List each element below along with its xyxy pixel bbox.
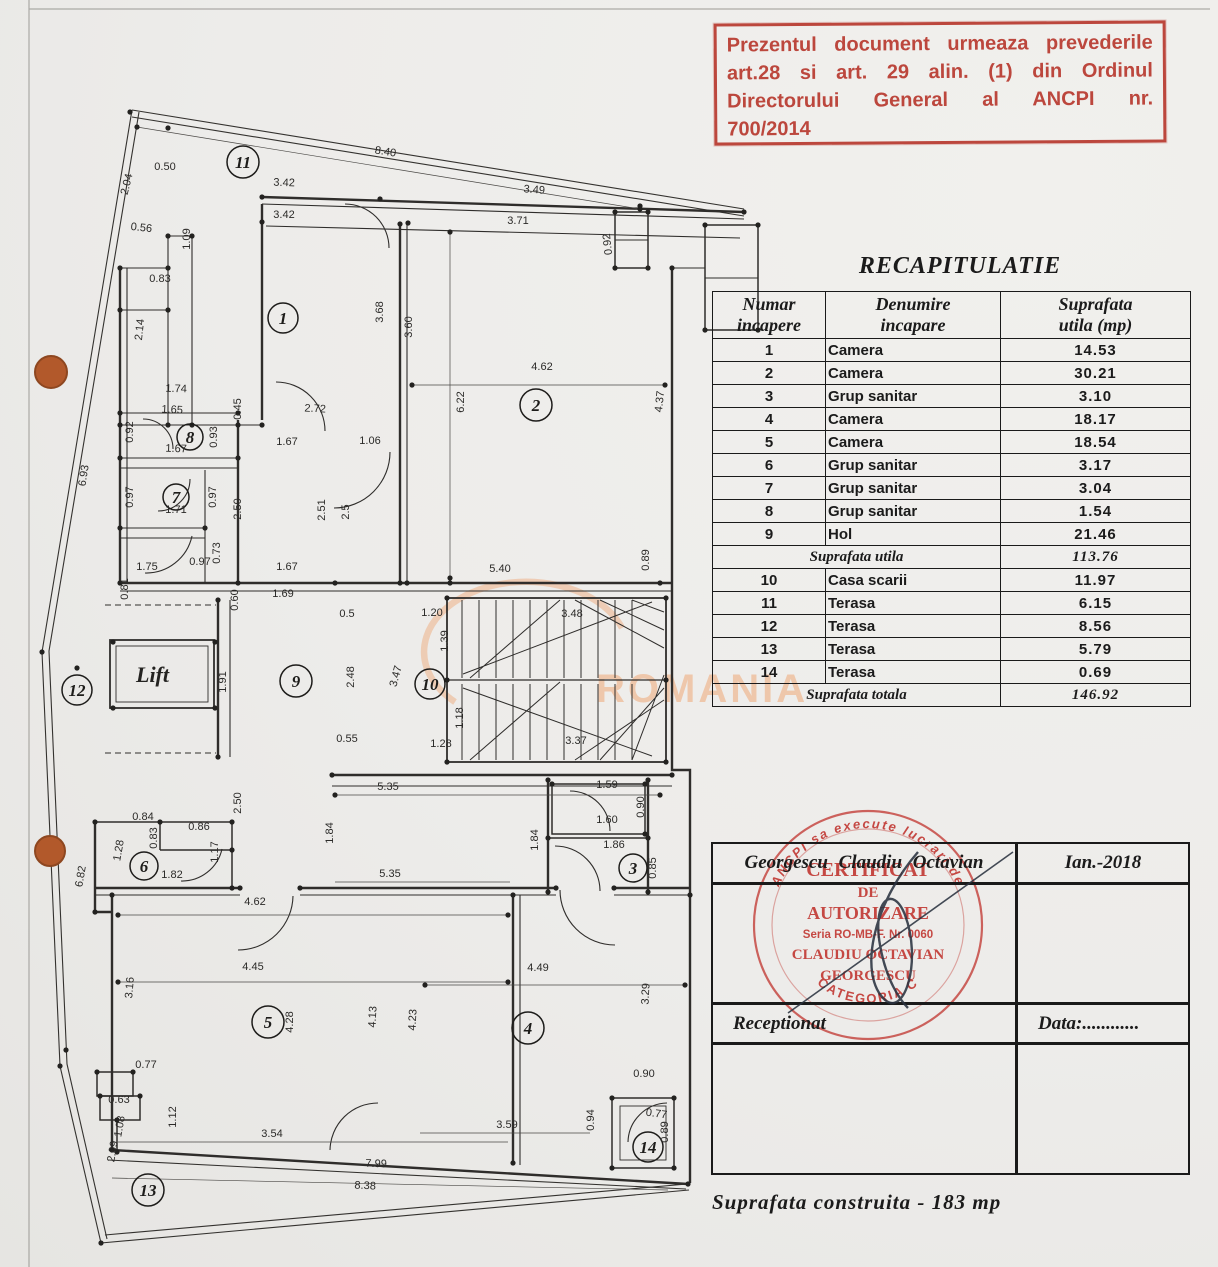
room-number: 8 <box>186 428 195 447</box>
dimension-label: 5.35 <box>379 868 400 880</box>
dimension-label: 0.97 <box>207 486 219 507</box>
dimension-label: 1.59 <box>596 779 617 791</box>
dimension-label: 1.75 <box>136 561 157 573</box>
dimension-label: 4.28 <box>284 1011 296 1032</box>
dimension-label: 0.92 <box>601 233 615 256</box>
room-number: 11 <box>235 153 251 172</box>
dimension-label: 8.40 <box>374 144 397 159</box>
room-number: 3 <box>628 859 638 878</box>
dimension-label: 0.90 <box>635 796 647 817</box>
recap-row: 12Terasa8.56 <box>713 615 1191 638</box>
dimension-label: 1.20 <box>421 607 442 619</box>
dimension-label: 2.5 <box>340 504 352 519</box>
dimension-label: 3.37 <box>565 735 586 747</box>
room-number: 4 <box>523 1019 533 1038</box>
dimension-label: 0.89 <box>640 549 652 570</box>
dimension-label: 0.92 <box>124 421 136 442</box>
stamp-line: 700/2014 <box>727 113 1153 144</box>
room-number: 9 <box>292 672 301 691</box>
dimension-label: 1.69 <box>272 588 293 600</box>
dimension-label: 0.83 <box>148 827 160 848</box>
dimension-label: 0.60 <box>229 589 241 610</box>
dimension-label: 6.22 <box>455 391 467 412</box>
dimension-label: 7.99 <box>365 1158 387 1171</box>
dimension-label: 0.84 <box>132 811 153 823</box>
room-number: 13 <box>140 1181 158 1200</box>
dimension-label: 2.50 <box>232 792 244 813</box>
dimension-label: 2.51 <box>316 499 328 520</box>
dimension-label: 4.37 <box>653 390 667 413</box>
recap-row: 14Terasa0.69 <box>713 661 1191 684</box>
col-header-suprafata: Suprafatautila (mp) <box>1001 292 1191 339</box>
dimension-label: 0.97 <box>124 486 136 507</box>
dimension-label: 3.71 <box>507 215 528 227</box>
dimension-label: 3.16 <box>123 977 137 999</box>
col-header-numar: Numarincapere <box>713 292 826 339</box>
dimension-label: 2.72 <box>304 402 326 415</box>
recap-row: 1Camera14.53 <box>713 339 1191 362</box>
recap-row: 13Terasa5.79 <box>713 638 1191 661</box>
dimension-label: 0.50 <box>154 161 175 173</box>
dimension-label: 1.67 <box>276 436 297 448</box>
dimension-label: 0.77 <box>135 1059 156 1071</box>
dimension-label: 2.09 <box>105 1140 121 1163</box>
wax-dot <box>35 836 65 866</box>
dimension-label: 3.59 <box>496 1119 517 1131</box>
dimension-label: 1.71 <box>165 504 186 516</box>
dimension-label: 5.40 <box>489 563 510 575</box>
dimension-label: 0.45 <box>232 398 244 419</box>
recap-row: 6Grup sanitar3.17 <box>713 454 1191 477</box>
dimension-label: 1.28 <box>111 839 127 862</box>
dimension-label: 4.23 <box>406 1009 419 1031</box>
dimension-label: 0.83 <box>149 273 170 285</box>
dimension-label: 5.35 <box>377 781 398 793</box>
recap-row: 5Camera18.54 <box>713 431 1191 454</box>
handwritten-signature <box>712 798 1190 1198</box>
room-number: 14 <box>640 1138 657 1157</box>
dimension-label: 1.91 <box>217 671 229 692</box>
dimension-label: 0.97 <box>189 556 210 568</box>
dimension-label: 8.38 <box>354 1179 376 1192</box>
room-number: 2 <box>531 396 541 415</box>
dimension-label: 1.65 <box>161 403 183 416</box>
dimension-label: 4.13 <box>366 1006 379 1028</box>
room-number: 10 <box>422 675 440 694</box>
dimension-label: 1.12 <box>167 1106 179 1127</box>
dimension-label: 0.5 <box>339 608 354 620</box>
dimension-label: 3.48 <box>561 608 582 620</box>
dimension-label: 3.54 <box>261 1128 282 1140</box>
dimension-label: 1.84 <box>529 829 541 850</box>
dimension-label: 3.60 <box>403 316 415 337</box>
recap-row: 7Grup sanitar3.04 <box>713 477 1191 500</box>
dimension-label: 3.47 <box>388 664 405 688</box>
dimension-label: 2.50 <box>232 498 244 519</box>
dimension-label: 1.86 <box>603 839 624 851</box>
dimension-label: 0.89 <box>659 1121 671 1142</box>
dimension-label: 1.84 <box>324 822 336 843</box>
room-number: 1 <box>279 309 288 328</box>
dimension-label: 1.18 <box>454 707 466 728</box>
recap-subtotal-row: Suprafata utila113.76 <box>713 546 1191 569</box>
dimension-label: 0.55 <box>336 733 357 745</box>
stamp-line: art.28 si art. 29 alin. (1) din Ordinul <box>727 57 1153 88</box>
dimension-label: 0.90 <box>633 1068 654 1080</box>
dimension-label: 0.81 <box>119 578 131 599</box>
room-number: 5 <box>264 1013 273 1032</box>
dimension-label: 1.82 <box>161 869 182 881</box>
dimension-label: 1.74 <box>165 383 187 396</box>
dimension-label: 1.28 <box>430 738 451 750</box>
recap-row: 3Grup sanitar3.10 <box>713 385 1191 408</box>
recap-table: Numarincapere Denumireincapare Suprafata… <box>712 291 1191 707</box>
dimension-label: 0.77 <box>645 1107 668 1122</box>
dimension-label: 2.14 <box>133 318 147 341</box>
recap-row: 11Terasa6.15 <box>713 592 1191 615</box>
dimension-label: 1.60 <box>596 814 617 826</box>
dimension-label: 0.73 <box>211 542 223 563</box>
dimension-label: 3.42 <box>273 209 294 221</box>
recap-title: RECAPITULATIE <box>760 253 1160 280</box>
room-number: 12 <box>69 681 87 700</box>
dimension-label: 1.09 <box>181 228 193 249</box>
watermark-swoosh <box>424 582 622 702</box>
dimension-label: 4.45 <box>242 961 263 973</box>
recap-row: 2Camera30.21 <box>713 362 1191 385</box>
recap-row: 10Casa scarii11.97 <box>713 569 1191 592</box>
dimension-label: 3.42 <box>273 177 295 190</box>
dimension-label: 0.85 <box>647 857 659 878</box>
room-number: 6 <box>140 857 149 876</box>
dimension-label: 4.62 <box>531 361 552 373</box>
col-header-denumire: Denumireincapare <box>826 292 1001 339</box>
dimension-label: 1.08 <box>112 1115 128 1138</box>
dimension-label: 4.62 <box>244 896 265 908</box>
recap-row: 9Hol21.46 <box>713 523 1191 546</box>
wax-dot <box>35 356 67 388</box>
dimension-label: 0.56 <box>130 221 153 235</box>
ancpi-rect-stamp: Prezentul document urmeaza prevederile a… <box>714 20 1167 145</box>
dimension-label: 6.82 <box>73 865 89 888</box>
dimension-label: 1.17 <box>209 841 221 862</box>
dimension-label: 3.29 <box>639 983 652 1005</box>
dimension-label: 1.06 <box>359 435 380 447</box>
dimension-label: 2.48 <box>345 666 357 687</box>
dimension-label: 0.93 <box>208 426 220 447</box>
dimension-label: 0.63 <box>108 1094 129 1106</box>
dimension-label: 0.86 <box>188 821 209 833</box>
lift-label: Lift <box>135 662 170 687</box>
recap-row: 8Grup sanitar1.54 <box>713 500 1191 523</box>
recap-total-row: Suprafata totala146.92 <box>713 684 1191 707</box>
dimension-label: 3.49 <box>523 183 545 196</box>
dimension-label: 4.49 <box>527 962 548 974</box>
dimension-label: 3.68 <box>374 301 386 322</box>
dimension-label: 1.39 <box>439 630 451 651</box>
dimension-label: 6.93 <box>76 464 91 487</box>
dimension-label: 1.67 <box>165 443 187 456</box>
stamp-line: Prezentul document urmeaza prevederile <box>727 29 1153 60</box>
stamp-line: Directorului General al ANCPI nr. <box>727 85 1153 116</box>
dimension-label: 1.67 <box>276 561 297 573</box>
scanned-floorplan-document: ROMANIA <box>0 0 1218 1267</box>
dimension-label: 0.94 <box>585 1109 597 1130</box>
recap-row: 4Camera18.17 <box>713 408 1191 431</box>
